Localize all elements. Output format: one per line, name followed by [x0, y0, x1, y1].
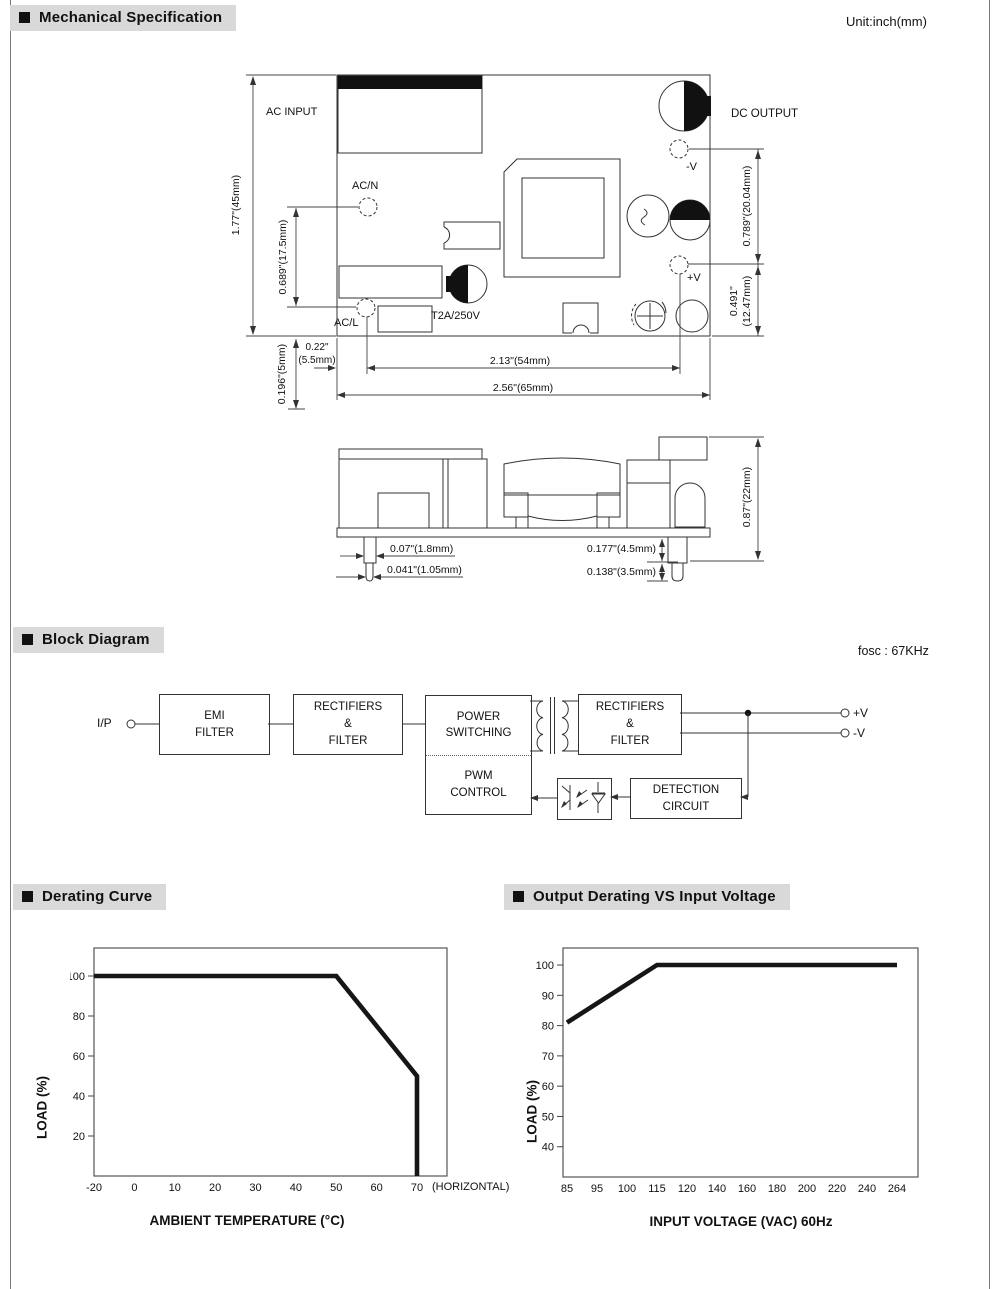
- dc-output-label: DC OUTPUT: [731, 108, 798, 121]
- dim-below-board: 0.196"(5mm): [276, 332, 288, 416]
- y-tick-label: 100: [70, 971, 85, 983]
- chart1-x-axis-label: AMBIENT TEMPERATURE (°C): [97, 1213, 397, 1228]
- chart2-x-axis-label: INPUT VOLTAGE (VAC) 60Hz: [591, 1214, 891, 1229]
- y-tick-label: 60: [542, 1081, 554, 1093]
- derating-line: [567, 965, 897, 1023]
- pcb-side-view: [337, 437, 710, 581]
- y-tick-label: 90: [542, 990, 554, 1002]
- dim-pin-span-horizontal: 2.13"(54mm): [450, 355, 590, 367]
- ac-input-label: AC INPUT: [266, 106, 317, 119]
- section-square-icon: [22, 891, 33, 902]
- rectifiers-filter-box-1: RECTIFIERS & FILTER: [293, 694, 403, 755]
- pwm-control-label: PWM CONTROL: [426, 756, 531, 815]
- derating-line: [94, 976, 417, 1176]
- dim-side-height: 0.87"(22mm): [741, 447, 753, 547]
- x-tick-label: 20: [209, 1182, 221, 1194]
- section-square-icon: [513, 891, 524, 902]
- section-title: Output Derating VS Input Voltage: [533, 888, 776, 905]
- x-tick-label: 40: [290, 1182, 302, 1194]
- x-tick-label: 10: [169, 1182, 181, 1194]
- plot-frame: [563, 948, 918, 1177]
- x-tick-label: 200: [798, 1183, 816, 1195]
- x-tick-label: 70: [411, 1182, 423, 1194]
- y-tick-label: 60: [73, 1051, 85, 1063]
- x-tick-label: -20: [86, 1182, 102, 1194]
- power-switching-pwm-box: POWER SWITCHING PWM CONTROL: [425, 695, 532, 815]
- dim-board-height: 1.77"(45mm): [230, 150, 242, 260]
- derating-curve-chart: -2001020304050607020406080100: [70, 940, 520, 1202]
- x-tick-label: 60: [371, 1182, 383, 1194]
- y-tick-label: 40: [542, 1142, 554, 1154]
- dim-pin-tip-width: 0.041"(1.05mm): [387, 564, 462, 576]
- ac-n-label: AC/N: [352, 180, 378, 193]
- section-header-derating-curve: Derating Curve: [13, 884, 166, 910]
- y-tick-label: 80: [73, 1011, 85, 1023]
- detection-circuit-box: DETECTION CIRCUIT: [630, 778, 742, 819]
- x-tick-label: 140: [708, 1183, 726, 1195]
- x-tick-label: 240: [858, 1183, 876, 1195]
- chart1-y-axis-label: LOAD (%): [35, 1063, 50, 1153]
- dim-edge-to-pin: 0.22" (5.5mm): [293, 342, 341, 367]
- x-tick-label: 120: [678, 1183, 696, 1195]
- x-tick-label: 115: [648, 1183, 666, 1195]
- dim-pin-length-b: 0.138"(3.5mm): [580, 566, 656, 578]
- emi-filter-box: EMI FILTER: [159, 694, 270, 755]
- x-tick-label: 264: [888, 1183, 906, 1195]
- optocoupler-box: [557, 778, 612, 820]
- section-header-output-derating: Output Derating VS Input Voltage: [504, 884, 790, 910]
- pos-v-pad-label: +V: [687, 272, 701, 285]
- input-terminal-label: I/P: [97, 717, 112, 731]
- x-tick-label: 85: [561, 1183, 573, 1195]
- plot-frame: [94, 948, 447, 1176]
- x-tick-label: 0: [131, 1182, 137, 1194]
- x-tick-label: 160: [738, 1183, 756, 1195]
- y-tick-label: 70: [542, 1051, 554, 1063]
- x-tick-label: 30: [249, 1182, 261, 1194]
- fuse-rating-label: T2A/250V: [431, 310, 480, 323]
- x-tick-label: 180: [768, 1183, 786, 1195]
- dim-out-pin-span: 0.789"(20.04mm): [741, 151, 753, 261]
- x-tick-label: 220: [828, 1183, 846, 1195]
- x-tick-label: 100: [618, 1183, 636, 1195]
- output-neg-label: -V: [853, 727, 865, 741]
- section-title: Derating Curve: [42, 888, 152, 905]
- dim-pin-width: 0.07"(1.8mm): [390, 543, 453, 555]
- dim-board-width: 2.56"(65mm): [453, 382, 593, 394]
- y-tick-label: 20: [73, 1131, 85, 1143]
- ac-l-label: AC/L: [334, 317, 358, 330]
- chart1-horizontal-note: (HORIZONTAL): [432, 1181, 509, 1194]
- rectifiers-filter-box-2: RECTIFIERS & FILTER: [578, 694, 682, 755]
- pcb-top-view: [337, 75, 711, 336]
- chart2-y-axis-label: LOAD (%): [525, 1067, 540, 1157]
- output-pos-label: +V: [853, 707, 868, 721]
- datasheet-page: { "page": { "unit": "Unit:inch(mm)" }, "…: [0, 0, 1000, 1289]
- output-derating-chart: 8595100115120140160180200220240264405060…: [530, 940, 950, 1202]
- dim-pin-length-a: 0.177"(4.5mm): [580, 543, 656, 555]
- neg-v-pad-label: -V: [686, 161, 697, 174]
- power-switching-label: POWER SWITCHING: [426, 696, 531, 756]
- dim-ac-pin-span: 0.689"(17.5mm): [277, 207, 289, 307]
- dim-out-pin-lower: 0.491" (12.47mm): [728, 263, 754, 339]
- y-tick-label: 50: [542, 1111, 554, 1123]
- x-tick-label: 95: [591, 1183, 603, 1195]
- y-tick-label: 100: [536, 960, 554, 972]
- y-tick-label: 40: [73, 1091, 85, 1103]
- x-tick-label: 50: [330, 1182, 342, 1194]
- y-tick-label: 80: [542, 1021, 554, 1033]
